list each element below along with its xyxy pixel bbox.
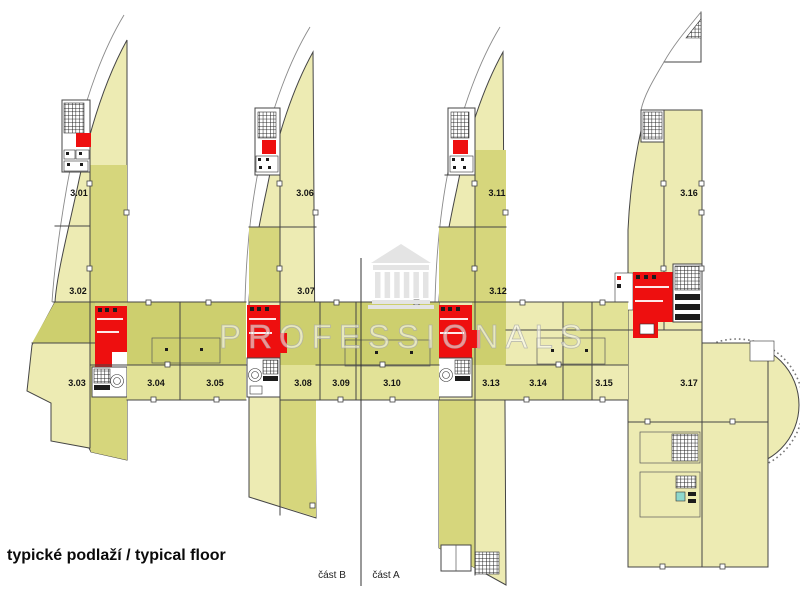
- stair-hatch: [258, 112, 276, 138]
- room-label-3-15: 3.15: [595, 378, 613, 388]
- page-title: typické podlaží / typical floor: [7, 547, 226, 564]
- band-seg3-lower-left: [506, 365, 592, 400]
- terrace-notch: [750, 341, 774, 361]
- stair-hatch: [451, 112, 469, 138]
- room-label-3-11: 3.11: [488, 188, 505, 198]
- room-label-3-07: 3.07: [297, 286, 315, 296]
- room-label-3-09: 3.09: [332, 378, 350, 388]
- section-label-b: část B: [318, 570, 346, 581]
- fixture-teal: [676, 492, 685, 501]
- stair-hatch: [64, 103, 84, 133]
- wing-2-olive-strip-lower: [280, 400, 316, 517]
- watermark-text: PROFESSIONALS: [219, 318, 589, 355]
- stair-hatch: [672, 434, 698, 461]
- room-label-3-08: 3.08: [294, 378, 312, 388]
- wing-1-core: [92, 306, 127, 397]
- wing-2-top-core: [255, 108, 280, 175]
- elevator-circle: [440, 369, 453, 382]
- room-label-3-12: 3.12: [489, 286, 507, 296]
- wing-3-olive-strip-lower: [439, 400, 475, 568]
- stair-hatch: [455, 360, 470, 374]
- wing-1-band-cell: [32, 302, 95, 343]
- room-label-3-13: 3.13: [482, 378, 500, 388]
- elevator-red: [76, 133, 91, 147]
- room-label-3-17: 3.17: [680, 378, 698, 388]
- section-label-a: část A: [372, 570, 400, 581]
- room-label-3-05: 3.05: [206, 378, 224, 388]
- stair-hatch: [263, 360, 278, 374]
- stair-hatch: [643, 112, 662, 139]
- stair-hatch: [475, 552, 499, 574]
- wing-3-top-core: [448, 108, 475, 175]
- stair-hatch: [675, 266, 700, 290]
- wing-1-top-core: [62, 100, 91, 172]
- room-label-3-14: 3.14: [529, 378, 547, 388]
- wing-1: [27, 15, 127, 460]
- wing-2: [245, 27, 316, 518]
- elevator-red: [453, 140, 468, 154]
- floor-plan-page: 3.01 3.02 3.03 3.04 3.05 3.06 3.07 3.08 …: [0, 0, 800, 599]
- wing-3-olive-room: [439, 227, 475, 302]
- room-label-3-10: 3.10: [383, 378, 401, 388]
- elevator-circle: [111, 375, 124, 388]
- wing-3: [435, 27, 506, 585]
- wing-4-top-core: [641, 110, 664, 142]
- temple-icon: [368, 244, 434, 309]
- wing-3-olive-strip: [475, 150, 506, 302]
- wing-2-olive-room: [249, 227, 280, 302]
- elevator-red: [262, 140, 276, 154]
- room-label-3-03: 3.03: [68, 378, 86, 388]
- floor-plan-canvas: 3.01 3.02 3.03 3.04 3.05 3.06 3.07 3.08 …: [0, 0, 800, 599]
- room-label-3-01: 3.01: [70, 188, 88, 198]
- wing-4: [615, 12, 800, 567]
- room-label-3-16: 3.16: [680, 188, 698, 198]
- band-seg1-lower: [127, 365, 246, 400]
- elevator-circle: [249, 369, 262, 382]
- room-label-3-02: 3.02: [69, 286, 87, 296]
- stair-hatch: [94, 369, 110, 383]
- room-label-3-06: 3.06: [296, 188, 314, 198]
- room-label-3-04: 3.04: [147, 378, 165, 388]
